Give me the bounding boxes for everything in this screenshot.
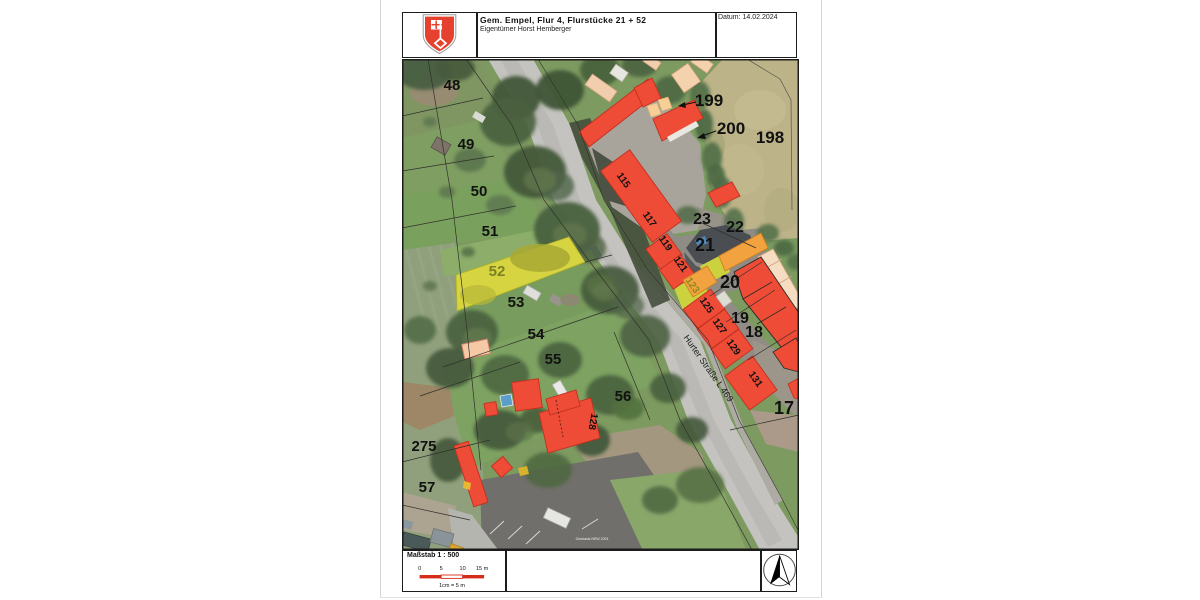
svg-text:56: 56	[615, 388, 632, 405]
svg-text:23: 23	[693, 211, 711, 228]
svg-text:48: 48	[444, 77, 461, 94]
svg-text:15 m: 15 m	[476, 566, 489, 572]
svg-text:20: 20	[720, 272, 740, 292]
svg-text:17: 17	[774, 398, 794, 418]
svg-text:199: 199	[695, 91, 723, 110]
svg-text:0: 0	[418, 566, 421, 572]
svg-text:54: 54	[528, 326, 545, 343]
svg-text:22: 22	[726, 219, 744, 236]
svg-text:57: 57	[419, 479, 436, 496]
svg-text:1cm = 5 m: 1cm = 5 m	[439, 583, 465, 589]
svg-text:10: 10	[460, 566, 466, 572]
svg-text:5: 5	[440, 566, 443, 572]
svg-text:49: 49	[458, 136, 475, 153]
svg-text:50: 50	[471, 183, 488, 200]
svg-text:275: 275	[411, 438, 436, 455]
svg-text:Geobasis NRW 2024: Geobasis NRW 2024	[576, 537, 609, 541]
svg-text:53: 53	[508, 294, 525, 311]
svg-text:200: 200	[717, 119, 745, 138]
svg-text:52: 52	[489, 263, 506, 280]
svg-text:51: 51	[482, 223, 499, 240]
svg-text:21: 21	[695, 235, 715, 255]
svg-text:55: 55	[545, 351, 562, 368]
svg-text:198: 198	[756, 128, 784, 147]
svg-text:18: 18	[745, 324, 763, 341]
